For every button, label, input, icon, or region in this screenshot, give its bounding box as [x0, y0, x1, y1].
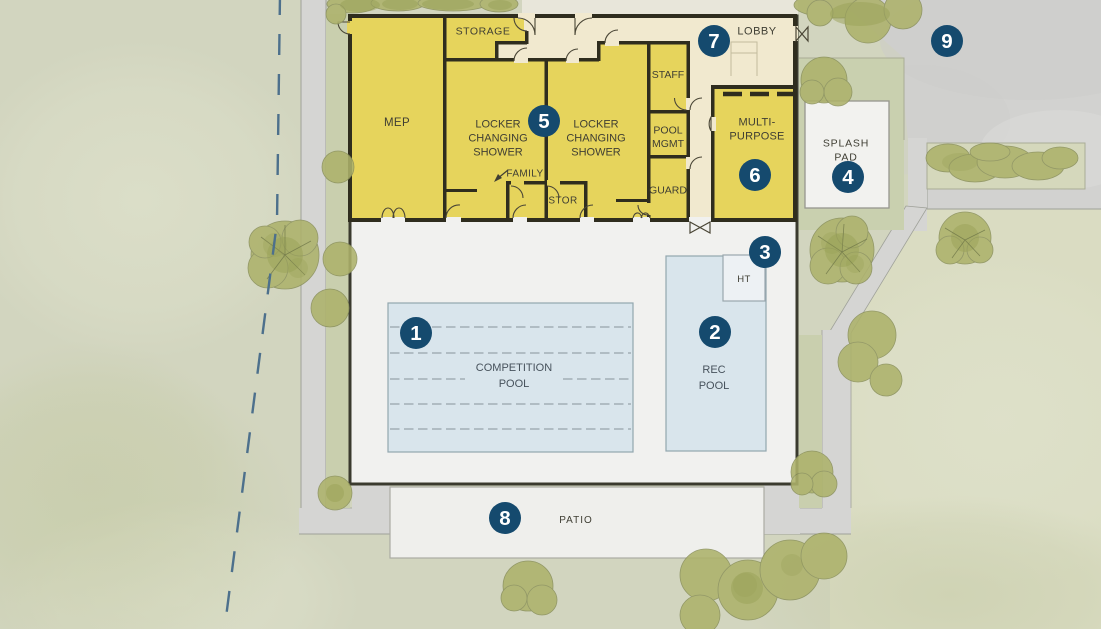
svg-text:GUARD: GUARD: [649, 185, 687, 197]
svg-text:COMPETITION: COMPETITION: [476, 362, 552, 374]
svg-text:PURPOSE: PURPOSE: [729, 131, 784, 143]
svg-text:9: 9: [941, 30, 952, 53]
svg-text:REC: REC: [702, 364, 725, 376]
svg-text:MEP: MEP: [384, 117, 410, 129]
svg-text:SHOWER: SHOWER: [571, 147, 621, 159]
svg-text:SHOWER: SHOWER: [473, 147, 523, 159]
svg-text:STAFF: STAFF: [652, 69, 684, 81]
svg-text:4: 4: [842, 166, 854, 189]
svg-text:1: 1: [410, 322, 421, 345]
svg-text:LOCKER: LOCKER: [475, 119, 520, 131]
svg-text:CHANGING: CHANGING: [468, 133, 527, 145]
svg-text:5: 5: [538, 110, 549, 133]
svg-text:LOCKER: LOCKER: [573, 119, 618, 131]
svg-text:POOL: POOL: [699, 380, 730, 392]
svg-text:HT: HT: [737, 274, 750, 285]
svg-text:FAMILY: FAMILY: [506, 169, 543, 180]
svg-text:6: 6: [749, 164, 760, 187]
svg-text:8: 8: [499, 507, 510, 530]
svg-text:POOL: POOL: [653, 125, 682, 137]
svg-text:STOR: STOR: [548, 196, 577, 207]
svg-text:LOBBY: LOBBY: [737, 26, 776, 38]
svg-text:2: 2: [709, 321, 720, 344]
svg-text:7: 7: [708, 30, 719, 53]
svg-text:SPLASH: SPLASH: [823, 138, 869, 150]
svg-text:MULTI-: MULTI-: [738, 117, 775, 129]
svg-text:STORAGE: STORAGE: [456, 26, 511, 38]
svg-text:POOL: POOL: [499, 378, 530, 390]
svg-text:PATIO: PATIO: [559, 515, 593, 526]
svg-text:MGMT: MGMT: [652, 138, 685, 150]
svg-text:3: 3: [759, 241, 770, 264]
svg-text:CHANGING: CHANGING: [566, 133, 625, 145]
